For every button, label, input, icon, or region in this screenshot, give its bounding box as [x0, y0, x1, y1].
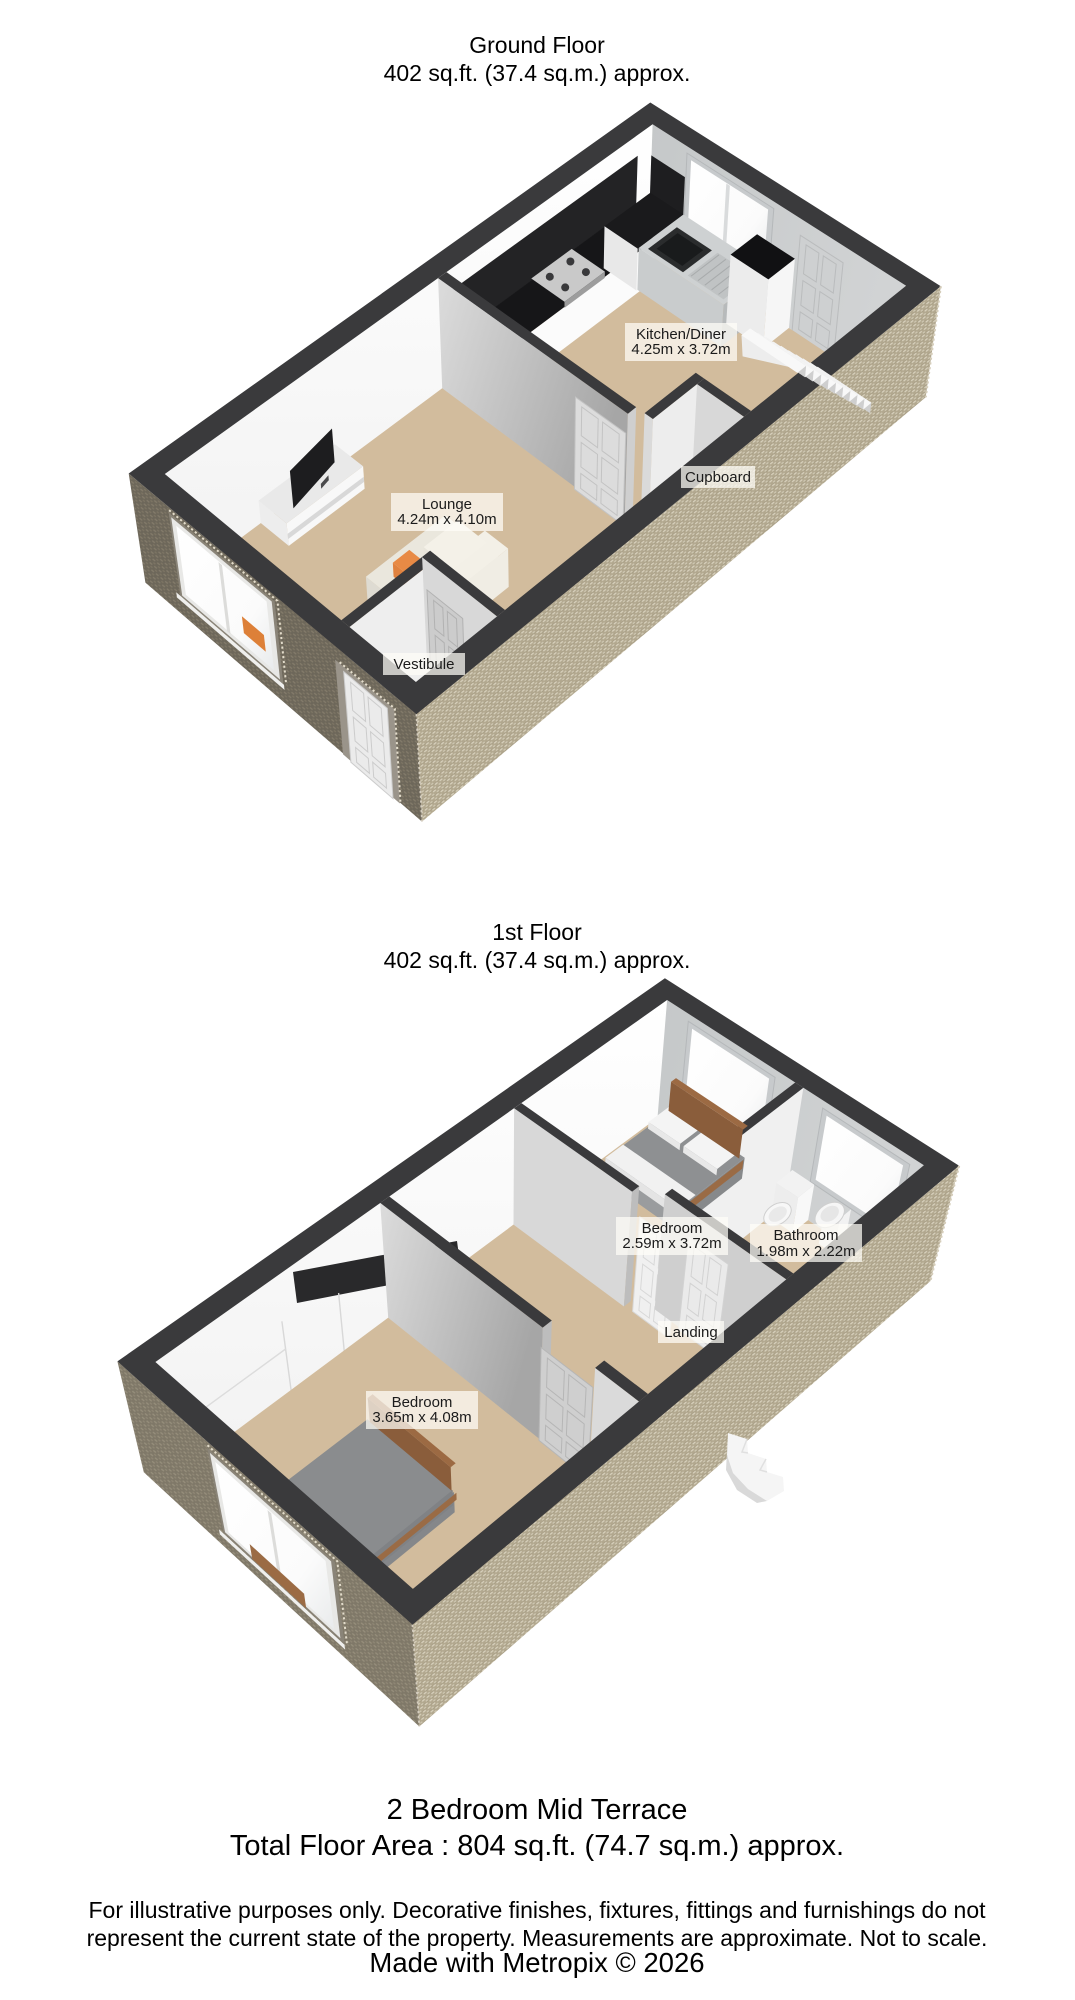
svg-text:2.59m x 3.72m: 2.59m x 3.72m	[622, 1235, 721, 1252]
svg-text:Total Floor Area : 804 sq.ft.: Total Floor Area : 804 sq.ft. (74.7 sq.m…	[230, 1830, 844, 1862]
svg-text:For illustrative purposes only: For illustrative purposes only. Decorati…	[89, 1897, 987, 1923]
svg-text:Vestibule: Vestibule	[394, 656, 455, 673]
svg-text:402 sq.ft. (37.4 sq.m.) approx: 402 sq.ft. (37.4 sq.m.) approx.	[384, 60, 691, 86]
svg-text:Ground Floor: Ground Floor	[469, 32, 605, 58]
svg-text:Bathroom: Bathroom	[773, 1227, 838, 1244]
svg-text:402 sq.ft. (37.4 sq.m.) approx: 402 sq.ft. (37.4 sq.m.) approx.	[384, 947, 691, 973]
svg-text:Landing: Landing	[664, 1324, 717, 1341]
svg-text:2 Bedroom Mid Terrace: 2 Bedroom Mid Terrace	[387, 1794, 688, 1826]
svg-text:Made with Metropix © 2026: Made with Metropix © 2026	[369, 1947, 704, 1978]
svg-text:4.24m x 4.10m: 4.24m x 4.10m	[397, 511, 496, 528]
svg-text:3.65m x 4.08m: 3.65m x 4.08m	[372, 1409, 471, 1426]
svg-text:Cupboard: Cupboard	[685, 469, 751, 486]
svg-text:1st Floor: 1st Floor	[492, 919, 582, 945]
svg-text:4.25m x 3.72m: 4.25m x 3.72m	[631, 341, 730, 358]
svg-text:1.98m x 2.22m: 1.98m x 2.22m	[756, 1243, 855, 1260]
